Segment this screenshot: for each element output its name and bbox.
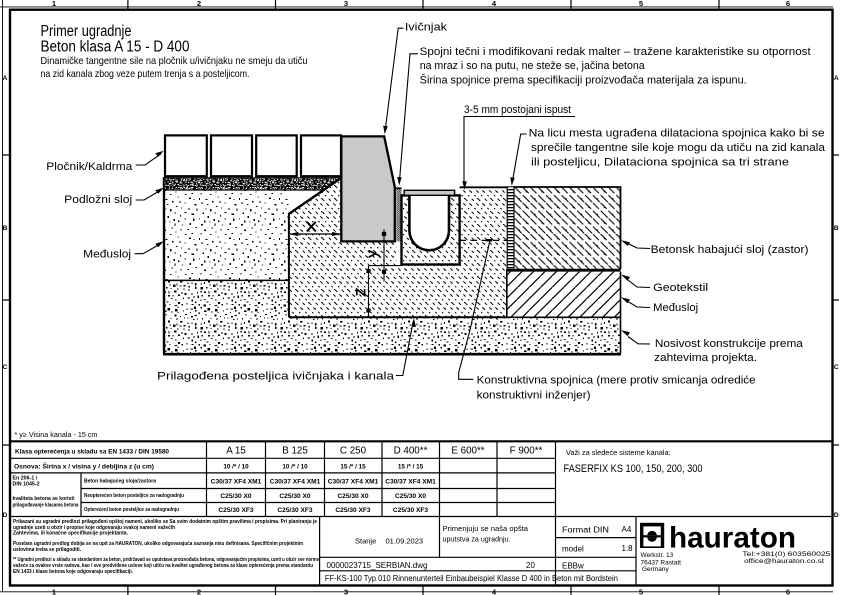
svg-text:Opterećeni beton posteljice za: Opterećeni beton posteljice za nadogradn… (84, 507, 179, 513)
svg-text:EN 1433 i klase betona koje od: EN 1433 i klase betona koje odgovaraju s… (13, 569, 134, 575)
svg-text:Nosivost konstrukcije prema: Nosivost konstrukcije prema (655, 338, 803, 350)
svg-text:na zid kanala zbog veze putem: na zid kanala zbog veze putem trenja s a… (41, 69, 250, 80)
svg-text:na mraz i so na putu, ne steže: na mraz i so na putu, ne steže se, jačin… (420, 60, 645, 72)
svg-text:zahtevima projekta.: zahtevima projekta. (654, 352, 757, 364)
svg-text:C 250: C 250 (340, 446, 367, 457)
svg-text:A 15: A 15 (226, 446, 246, 457)
svg-text:Na licu mesta ugrađena dilatac: Na licu mesta ugrađena dilataciona spojn… (529, 128, 825, 140)
svg-text:15 /* / 15: 15 /* / 15 (340, 464, 366, 471)
svg-text:C25/30 XF3: C25/30 XF3 (277, 507, 313, 514)
svg-text:2: 2 (197, 588, 201, 595)
svg-text:FASERFIX KS 100, 150, 200, 300: FASERFIX KS 100, 150, 200, 300 (564, 463, 703, 475)
svg-text:C30/37 XF4 XM1: C30/37 XF4 XM1 (328, 479, 379, 486)
svg-text:2: 2 (197, 0, 201, 8)
svg-text:C: C (834, 364, 839, 371)
svg-text:3: 3 (344, 588, 348, 595)
svg-text:B: B (3, 225, 8, 232)
svg-text:Spojni tečni i modifikovani re: Spojni tečni i modifikovani redak malter… (420, 46, 811, 58)
svg-text:D: D (3, 512, 8, 519)
svg-text:A4: A4 (622, 525, 632, 534)
svg-text:Dinamičke tangentne sile na pl: Dinamičke tangentne sile na pločnik u/iv… (41, 56, 308, 67)
svg-text:A: A (3, 75, 8, 82)
svg-text:C25/30 X0: C25/30 X0 (395, 493, 426, 500)
svg-text:Neopterećen beton posteljice z: Neopterećen beton posteljice za nadograd… (84, 493, 184, 499)
svg-text:Geotekstil: Geotekstil (653, 282, 708, 294)
svg-text:* y≥ Visina kanala - 15 cm: * y≥ Visina kanala - 15 cm (15, 430, 98, 439)
svg-text:C25/30 XF3: C25/30 XF3 (218, 507, 254, 514)
svg-text:EBBw: EBBw (562, 562, 584, 571)
svg-text:10 /* / 10: 10 /* / 10 (223, 464, 249, 471)
svg-text:D: D (834, 512, 839, 519)
svg-text:Beton habajućeg sloja/zastora: Beton habajućeg sloja/zastora (84, 479, 156, 485)
svg-text:Stanje: Stanje (355, 537, 376, 546)
svg-text:Važi za sledеće sisteme kanala: Važi za sledеće sisteme kanala: (566, 448, 671, 457)
svg-text:C25/30 X0: C25/30 X0 (279, 493, 310, 500)
svg-text:Tel:+381(0) 603560025: Tel:+381(0) 603560025 (742, 551, 830, 558)
svg-text:B 125: B 125 (282, 446, 308, 457)
svg-text:Međusloj: Međusloj (653, 302, 698, 314)
svg-text:6: 6 (786, 588, 790, 595)
svg-text:C25/30 X0: C25/30 X0 (337, 493, 368, 500)
svg-text:Ivičnjak: Ivičnjak (405, 22, 448, 34)
svg-text:FF-KS-100 Typ 010 Rinnenuntert: FF-KS-100 Typ 010 Rinnenunterteil Einbau… (325, 574, 618, 583)
svg-text:kvaliteta betona se koristi: kvaliteta betona se koristi (13, 496, 76, 502)
svg-text:F 900**: F 900** (510, 446, 543, 457)
svg-text:01.09.2023: 01.09.2023 (386, 537, 424, 546)
svg-text:20: 20 (526, 561, 535, 570)
svg-text:Konstruktivna spojnica (mere p: Konstruktivna spojnica (mere protiv smic… (477, 374, 756, 386)
svg-text:15 /* / 15: 15 /* / 15 (398, 464, 424, 471)
svg-text:D 400**: D 400** (394, 446, 428, 457)
svg-text:B: B (834, 225, 839, 232)
svg-text:sprečile tangentne sile koje m: sprečile tangentne sile koje mogu da uti… (531, 142, 825, 154)
svg-text:10 /* / 10: 10 /* / 10 (282, 464, 308, 471)
svg-text:C: C (3, 364, 8, 371)
svg-text:1:8: 1:8 (622, 544, 634, 553)
svg-text:Betonsk habajući sloj (zastor): Betonsk habajući sloj (zastor) (651, 244, 809, 256)
svg-text:Klasa opterećenja u skladu sa: Klasa opterećenja u skladu sa EN 1433 / … (15, 449, 169, 456)
svg-text:uslovima treba se prilagoditi.: uslovima treba se prilagoditi. (13, 547, 82, 553)
svg-text:6: 6 (786, 0, 790, 8)
svg-text:Format DIN: Format DIN (562, 526, 609, 535)
svg-text:Germany: Germany (642, 566, 669, 573)
svg-text:Prilagođena posteljica ivičnja: Prilagođena posteljica ivičnjaka i kanal… (157, 371, 394, 383)
svg-text:C25/30 X0: C25/30 X0 (220, 493, 251, 500)
svg-text:ili posteljicu, Dilataciona sp: ili posteljicu, Dilataciona spojnica sa … (531, 156, 789, 168)
svg-text:C30/37 XF4 XM1: C30/37 XF4 XM1 (211, 479, 262, 486)
svg-text:C30/37 XF4 XM1: C30/37 XF4 XM1 (385, 479, 436, 486)
svg-text:E 600**: E 600** (451, 446, 484, 457)
svg-text:prilagođavanje klasama betona: prilagođavanje klasama betona (13, 503, 79, 509)
svg-text:A: A (834, 75, 839, 82)
svg-text:uputstva za ugradnju.: uputstva za ugradnju. (443, 535, 511, 544)
svg-text:office@hauraton.co.st: office@hauraton.co.st (744, 558, 824, 565)
svg-text:Primenjuju se naša opšta: Primenjuju se naša opšta (443, 524, 529, 533)
svg-text:Pločnik/Kaldrma: Pločnik/Kaldrma (46, 161, 133, 173)
svg-text:Međusloj: Međusloj (83, 248, 131, 260)
svg-text:3-5 mm postojani ispust: 3-5 mm postojani ispust (464, 104, 571, 116)
svg-text:Podložni sloj: Podložni sloj (64, 194, 132, 206)
svg-text:Werkstr. 13: Werkstr. 13 (641, 552, 674, 559)
svg-text:0000023715_SERBIAN.dwg: 0000023715_SERBIAN.dwg (327, 561, 428, 570)
svg-text:Osnova: Širina x / visina y /: Osnova: Širina x / visina y / debljina z… (14, 462, 154, 471)
svg-text:C25/30 XF3: C25/30 XF3 (335, 507, 371, 514)
svg-text:C30/37 XF4 XM1: C30/37 XF4 XM1 (270, 479, 321, 486)
svg-text:Širina spojnice prema specifik: Širina spojnice prema specifikaciji proi… (420, 73, 747, 86)
svg-text:C25/30 XF3: C25/30 XF3 (393, 507, 429, 514)
svg-text:hauraton: hauraton (669, 522, 796, 555)
svg-text:Beton klasa A 15 - D 400: Beton klasa A 15 - D 400 (41, 38, 190, 55)
svg-text:konstruktivni inženjer): konstruktivni inženjer) (477, 389, 591, 401)
svg-text:3: 3 (344, 0, 348, 8)
svg-text:model: model (562, 545, 584, 554)
svg-text:DIN 1045-2: DIN 1045-2 (13, 482, 40, 488)
svg-text:Zahtevima, ili konačne specifi: Zahtevima, ili konačne specifikacije pro… (13, 531, 129, 537)
